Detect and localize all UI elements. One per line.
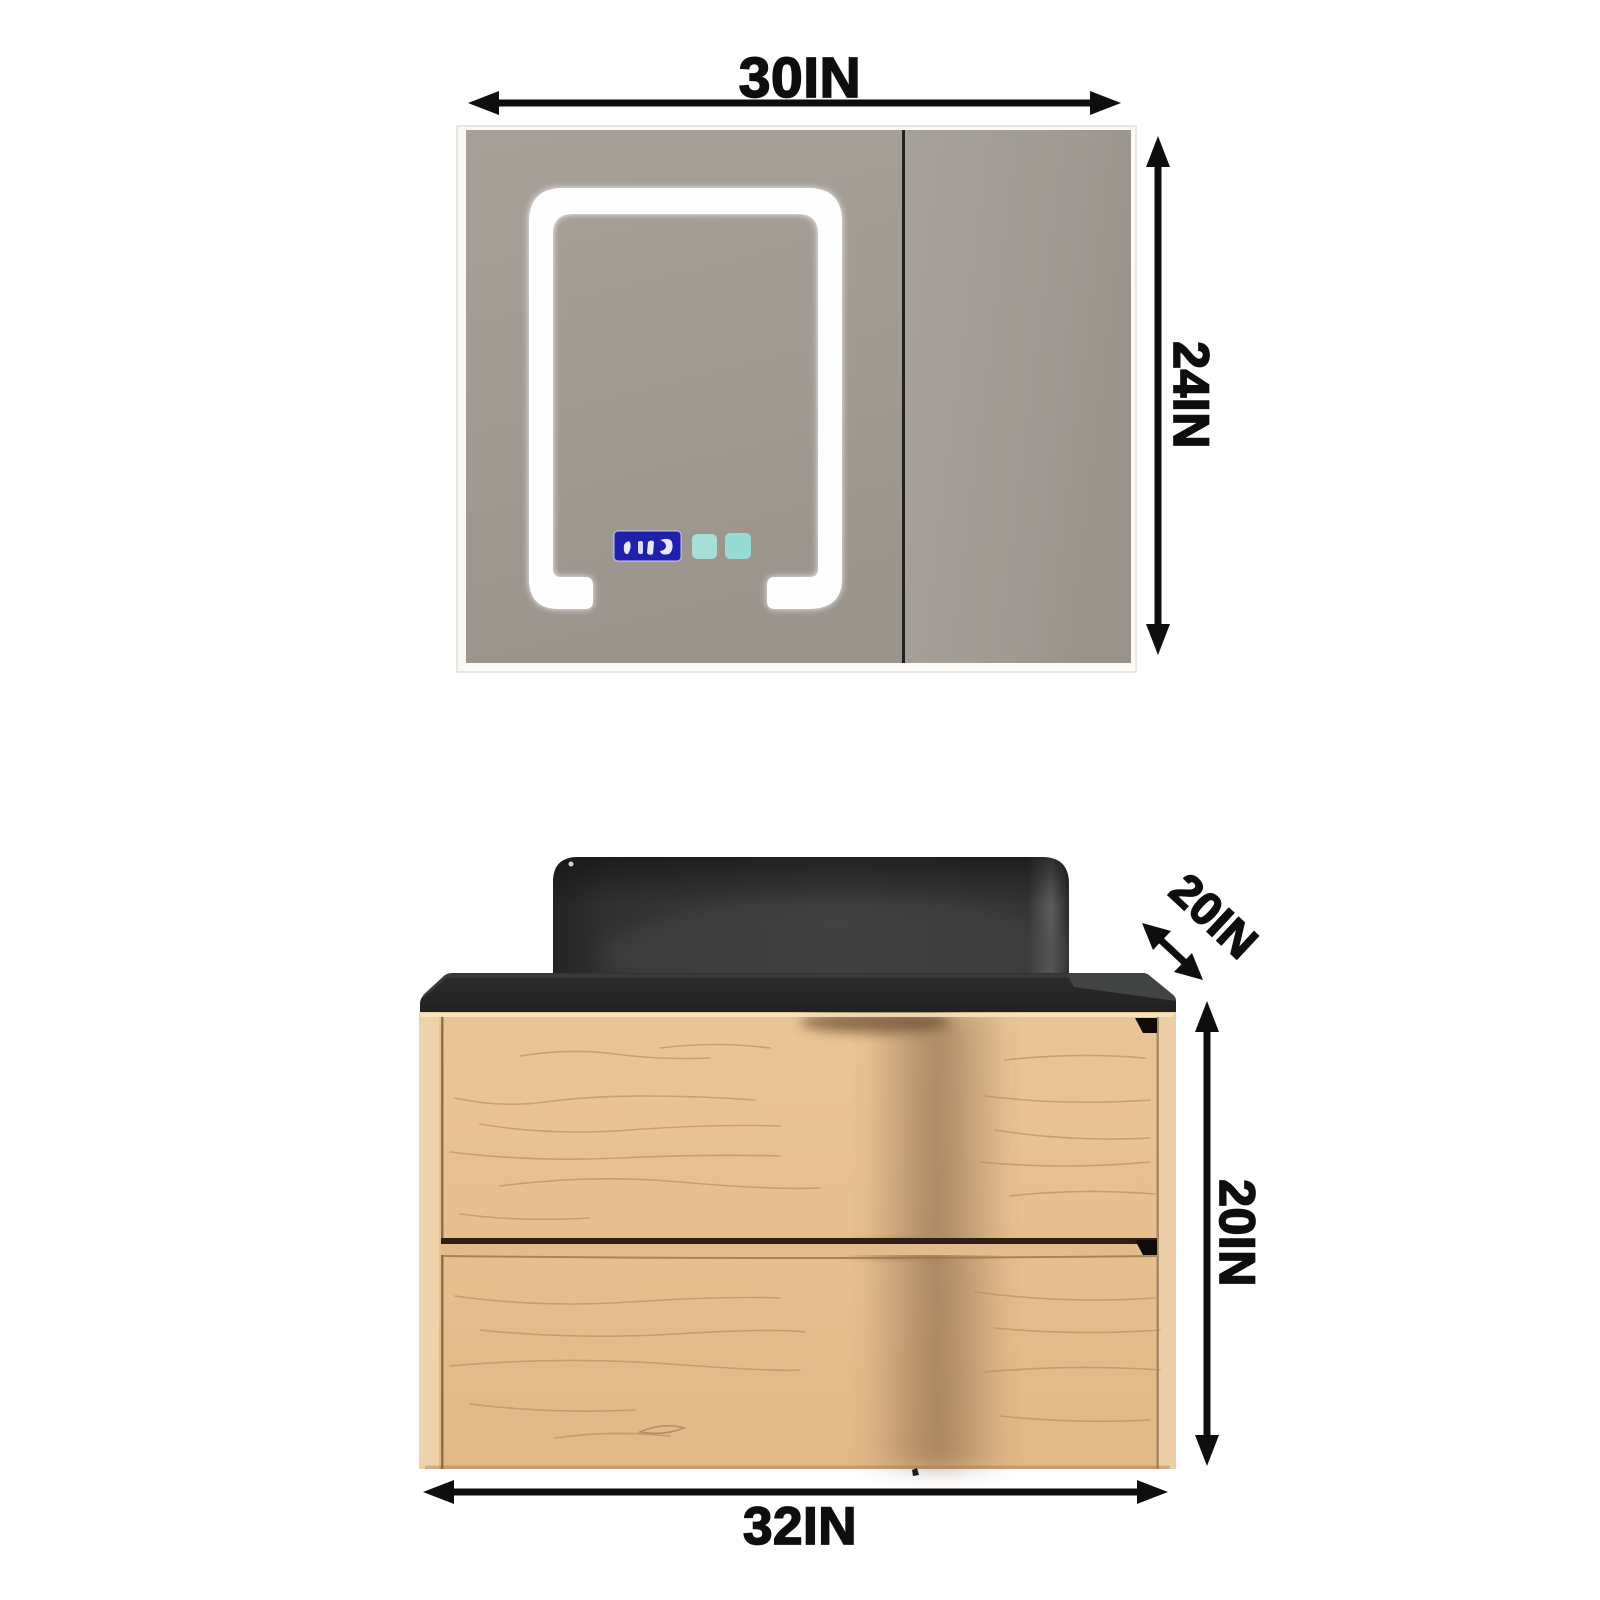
svg-text:20IN: 20IN bbox=[1209, 1179, 1265, 1287]
svg-text:32IN: 32IN bbox=[743, 1497, 857, 1556]
svg-text:24IN: 24IN bbox=[1163, 341, 1219, 449]
